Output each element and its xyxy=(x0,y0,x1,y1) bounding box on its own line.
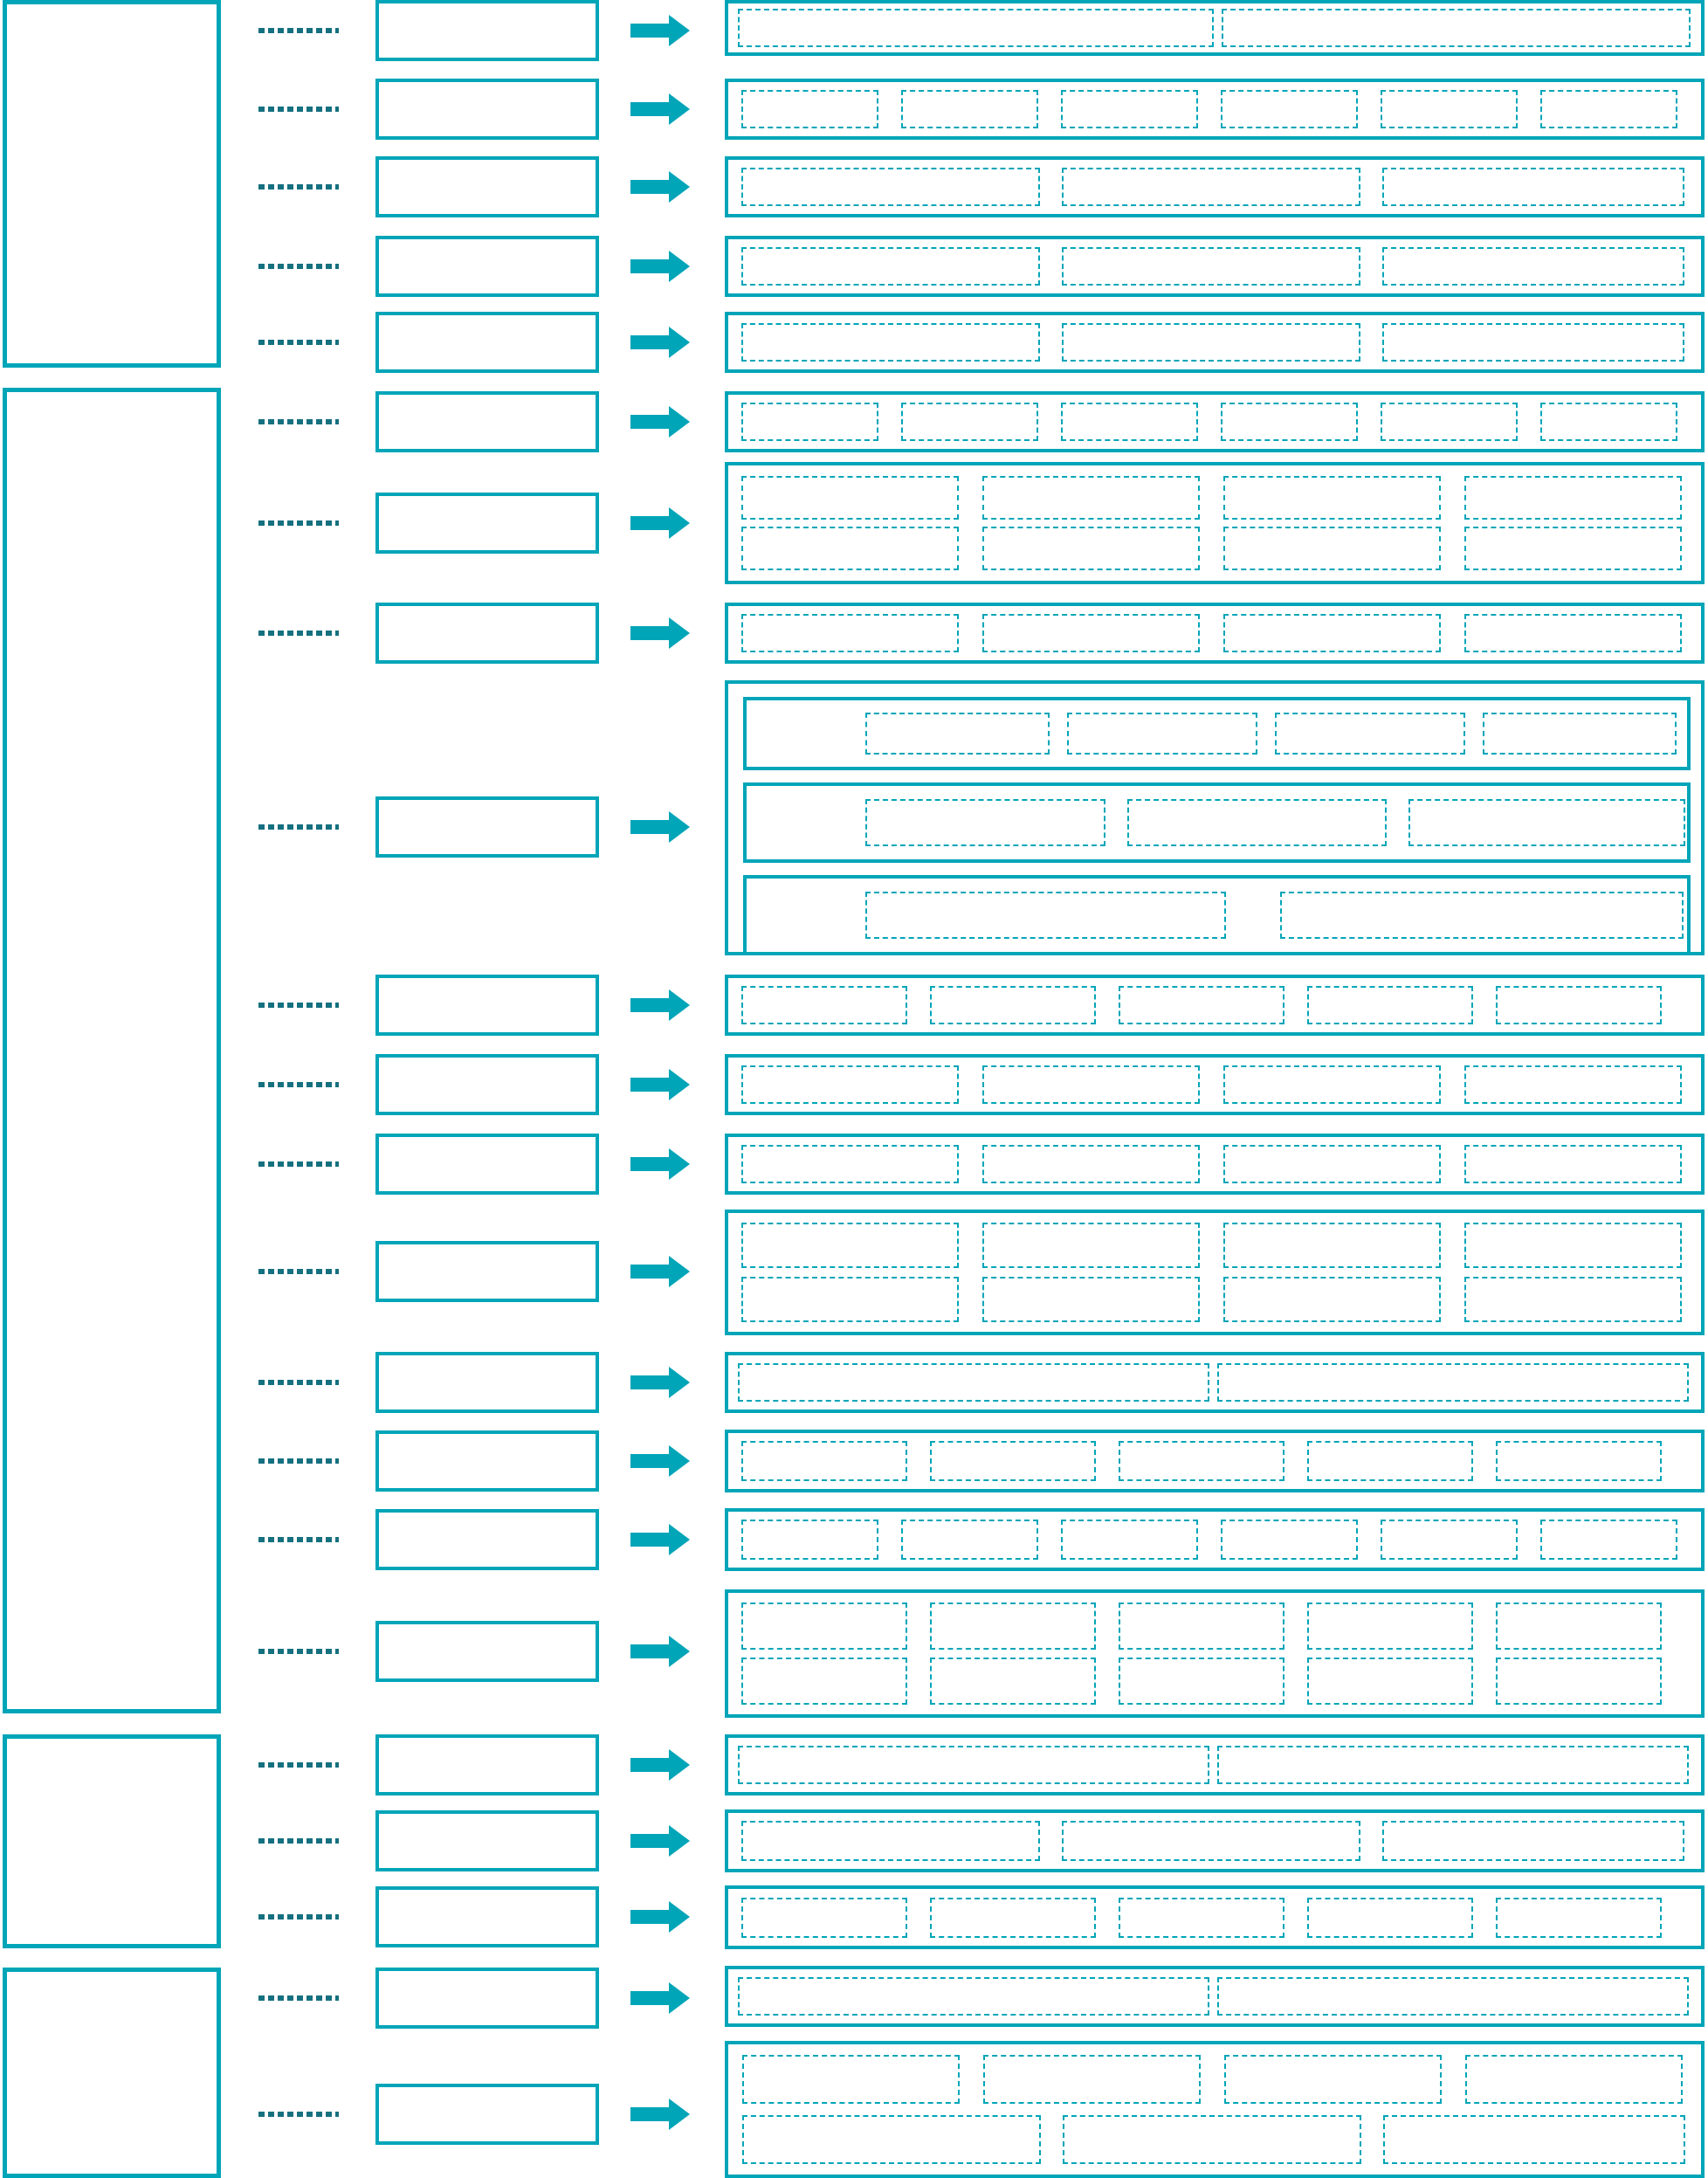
items-container xyxy=(725,462,1705,584)
item-placeholder-cell xyxy=(982,1277,1200,1322)
item-placeholder-cell xyxy=(1223,1065,1441,1104)
item-placeholder-cell xyxy=(1496,1898,1662,1938)
cells-row xyxy=(728,606,1701,660)
item-placeholder-cell xyxy=(1540,1520,1677,1560)
items-container xyxy=(725,1210,1705,1335)
item-placeholder-cell xyxy=(1062,323,1360,362)
arrow-shaft xyxy=(630,1078,672,1092)
item-placeholder-cell xyxy=(741,90,878,128)
item-placeholder-cell xyxy=(1275,713,1465,755)
arrow-right-icon xyxy=(630,1636,690,1667)
arrow-right-icon xyxy=(630,989,690,1021)
group-box-4 xyxy=(3,1968,221,2178)
cells-row xyxy=(728,3,1701,52)
cells-row xyxy=(728,1658,1701,1705)
cells-row xyxy=(728,395,1701,449)
items-container xyxy=(725,1054,1705,1115)
item-placeholder-cell xyxy=(1217,1977,1689,2016)
arrow-shaft xyxy=(630,1834,672,1848)
arrow-head xyxy=(669,327,690,358)
item-placeholder-cell xyxy=(1221,403,1358,441)
item-placeholder-cell xyxy=(901,403,1038,441)
item-placeholder-cell xyxy=(930,1441,1096,1481)
item-placeholder-cell xyxy=(1307,1658,1473,1705)
item-placeholder-cell xyxy=(982,527,1200,570)
cells-row xyxy=(728,2115,1701,2164)
arrow-head xyxy=(669,2099,690,2130)
item-placeholder-cell xyxy=(741,1658,907,1705)
arrow-shaft xyxy=(630,2107,672,2121)
items-container xyxy=(725,1734,1705,1795)
item-placeholder-cell xyxy=(1223,476,1441,520)
dashed-connector-line xyxy=(258,1269,339,1274)
items-container xyxy=(725,391,1705,452)
item-placeholder-cell xyxy=(1119,1441,1284,1481)
dashed-connector-line xyxy=(258,824,339,830)
items-container xyxy=(725,0,1705,56)
item-placeholder-cell xyxy=(1464,1145,1682,1183)
arrow-head xyxy=(669,1982,690,2014)
arrow-head xyxy=(669,1367,690,1398)
item-placeholder-cell xyxy=(738,1977,1209,2016)
arrow-head xyxy=(669,1445,690,1477)
cells-row xyxy=(728,1738,1701,1792)
diagram-canvas xyxy=(0,0,1708,2178)
item-placeholder-cell xyxy=(1061,403,1198,441)
dashed-connector-line xyxy=(258,631,339,636)
arrow-right-icon xyxy=(630,1982,690,2014)
item-placeholder-cell xyxy=(1383,2115,1685,2164)
item-placeholder-cell xyxy=(930,1602,1096,1650)
dashed-connector-line xyxy=(258,1914,339,1920)
item-placeholder-cell xyxy=(1119,1658,1284,1705)
dashed-connector-line xyxy=(258,1537,339,1542)
arrow-right-icon xyxy=(630,1148,690,1180)
item-placeholder-cell xyxy=(1464,614,1682,652)
arrow-shaft xyxy=(630,415,672,429)
item-placeholder-cell xyxy=(930,986,1096,1024)
arrow-shaft xyxy=(630,1758,672,1772)
arrow-right-icon xyxy=(630,15,690,46)
item-placeholder-cell xyxy=(930,1898,1096,1938)
cells-row xyxy=(728,82,1701,136)
items-container xyxy=(725,1885,1705,1949)
item-placeholder-cell xyxy=(741,1223,959,1268)
arrow-shaft xyxy=(630,1375,672,1389)
cells-row xyxy=(728,239,1701,293)
cells-row xyxy=(728,1137,1701,1191)
category-box xyxy=(375,312,599,373)
item-placeholder-cell xyxy=(1381,90,1518,128)
items-container xyxy=(725,1430,1705,1492)
item-placeholder-cell xyxy=(1062,247,1360,286)
item-placeholder-cell xyxy=(865,892,1226,939)
cells-row xyxy=(728,160,1701,214)
item-placeholder-cell xyxy=(1307,1602,1473,1650)
item-placeholder-cell xyxy=(741,1145,959,1183)
item-placeholder-cell xyxy=(982,1065,1200,1104)
arrow-shaft xyxy=(630,24,672,38)
arrow-right-icon xyxy=(630,1069,690,1100)
arrow-head xyxy=(669,1069,690,1100)
category-box xyxy=(375,2084,599,2145)
arrow-shaft xyxy=(630,259,672,273)
cells-row xyxy=(728,1277,1701,1322)
arrow-shaft xyxy=(630,335,672,349)
arrow-head xyxy=(669,406,690,438)
item-placeholder-cell xyxy=(1063,2115,1361,2164)
item-placeholder-cell xyxy=(1119,1898,1284,1938)
arrow-head xyxy=(669,1524,690,1555)
dashed-connector-line xyxy=(258,1838,339,1844)
sub-items-container xyxy=(743,697,1691,770)
item-placeholder-cell xyxy=(1223,527,1441,570)
sub-items-container xyxy=(743,875,1691,955)
arrow-right-icon xyxy=(630,2099,690,2130)
cells-row xyxy=(728,476,1701,520)
item-placeholder-cell xyxy=(1483,713,1677,755)
cells-row xyxy=(728,315,1701,369)
item-placeholder-cell xyxy=(1221,90,1358,128)
arrow-head xyxy=(669,1825,690,1857)
category-box xyxy=(375,1352,599,1413)
item-placeholder-cell xyxy=(1307,1898,1473,1938)
item-placeholder-cell xyxy=(1496,1602,1662,1650)
item-placeholder-cell xyxy=(1540,90,1677,128)
arrow-head xyxy=(669,1148,690,1180)
items-container xyxy=(725,236,1705,297)
arrow-right-icon xyxy=(630,93,690,125)
arrow-head xyxy=(669,1749,690,1781)
item-placeholder-cell xyxy=(1280,892,1684,939)
item-placeholder-cell xyxy=(741,527,959,570)
dashed-connector-line xyxy=(258,520,339,526)
arrow-shaft xyxy=(630,1644,672,1658)
arrow-head xyxy=(669,989,690,1021)
item-placeholder-cell xyxy=(1119,986,1284,1024)
arrow-head xyxy=(669,93,690,125)
dashed-connector-line xyxy=(258,1380,339,1385)
item-placeholder-cell xyxy=(742,2115,1041,2164)
category-box xyxy=(375,1509,599,1570)
category-box xyxy=(375,1430,599,1492)
arrow-shaft xyxy=(630,1991,672,2005)
dashed-connector-line xyxy=(258,419,339,424)
item-placeholder-cell xyxy=(741,1520,878,1560)
item-placeholder-cell xyxy=(1221,1520,1358,1560)
arrow-shaft xyxy=(630,1157,672,1171)
item-placeholder-cell xyxy=(741,168,1040,206)
arrow-right-icon xyxy=(630,251,690,282)
item-placeholder-cell xyxy=(1223,1145,1441,1183)
item-placeholder-cell xyxy=(1127,799,1387,846)
group-box-1 xyxy=(3,0,221,368)
item-placeholder-cell xyxy=(741,476,959,520)
dashed-connector-line xyxy=(258,2112,339,2117)
item-placeholder-cell xyxy=(1540,403,1677,441)
item-placeholder-cell xyxy=(741,1065,959,1104)
items-container xyxy=(725,1966,1705,2027)
arrow-shaft xyxy=(630,516,672,530)
cells-row xyxy=(728,1889,1701,1946)
item-placeholder-cell xyxy=(1408,799,1685,846)
cells-row xyxy=(728,1512,1701,1568)
arrow-shaft xyxy=(630,1265,672,1279)
dashed-connector-line xyxy=(258,1458,339,1464)
category-box xyxy=(375,493,599,554)
item-placeholder-cell xyxy=(1382,1821,1684,1861)
items-container xyxy=(725,680,1705,955)
cells-row xyxy=(728,1433,1701,1489)
item-placeholder-cell xyxy=(1496,1441,1662,1481)
arrow-shaft xyxy=(630,1454,672,1468)
category-box xyxy=(375,1886,599,1947)
arrow-right-icon xyxy=(630,1749,690,1781)
item-placeholder-cell xyxy=(741,1602,907,1650)
items-container xyxy=(725,2041,1705,2178)
category-box xyxy=(375,1054,599,1115)
arrow-shaft xyxy=(630,1533,672,1547)
arrow-right-icon xyxy=(630,1445,690,1477)
item-placeholder-cell xyxy=(741,1277,959,1322)
dashed-connector-line xyxy=(258,184,339,190)
dashed-connector-line xyxy=(258,1762,339,1768)
group-box-3 xyxy=(3,1734,221,1948)
category-box xyxy=(375,1134,599,1195)
items-container xyxy=(725,1134,1705,1195)
cells-row xyxy=(728,2055,1701,2104)
item-placeholder-cell xyxy=(741,403,878,441)
arrow-head xyxy=(669,811,690,843)
arrow-right-icon xyxy=(630,617,690,649)
item-placeholder-cell xyxy=(1061,1520,1198,1560)
cells-row xyxy=(728,1223,1701,1268)
item-placeholder-cell xyxy=(1067,713,1257,755)
item-placeholder-cell xyxy=(1496,1658,1662,1705)
dashed-connector-line xyxy=(258,1082,339,1087)
cells-row xyxy=(728,527,1701,570)
arrow-shaft xyxy=(630,1910,672,1924)
category-box xyxy=(375,1734,599,1795)
arrow-shaft xyxy=(630,626,672,640)
items-container xyxy=(725,1508,1705,1571)
item-placeholder-cell xyxy=(741,614,959,652)
item-placeholder-cell xyxy=(738,1363,1209,1402)
arrow-right-icon xyxy=(630,507,690,539)
arrow-head xyxy=(669,1636,690,1667)
item-placeholder-cell xyxy=(982,1223,1200,1268)
item-placeholder-cell xyxy=(1382,247,1684,286)
item-placeholder-cell xyxy=(1381,1520,1518,1560)
cells-grid xyxy=(728,465,1701,581)
arrow-shaft xyxy=(630,180,672,194)
arrow-head xyxy=(669,15,690,46)
item-placeholder-cell xyxy=(1307,986,1473,1024)
item-placeholder-cell xyxy=(1307,1441,1473,1481)
cells-row xyxy=(728,1969,1701,2023)
category-box xyxy=(375,1968,599,2029)
dashed-connector-line xyxy=(258,1649,339,1654)
item-placeholder-cell xyxy=(865,799,1105,846)
items-container xyxy=(725,975,1705,1036)
item-placeholder-cell xyxy=(742,2055,960,2104)
dashed-connector-line xyxy=(258,28,339,33)
category-box xyxy=(375,79,599,140)
arrow-right-icon xyxy=(630,171,690,203)
arrow-right-icon xyxy=(630,811,690,843)
arrow-head xyxy=(669,251,690,282)
cells-row xyxy=(728,1058,1701,1112)
item-placeholder-cell xyxy=(1217,1363,1689,1402)
arrow-right-icon xyxy=(630,406,690,438)
arrow-head xyxy=(669,1901,690,1933)
category-box xyxy=(375,391,599,452)
items-container xyxy=(725,156,1705,217)
item-placeholder-cell xyxy=(1464,1277,1682,1322)
items-container xyxy=(725,1809,1705,1872)
item-placeholder-cell xyxy=(1464,1065,1682,1104)
cells-row xyxy=(728,1813,1701,1869)
category-box xyxy=(375,1621,599,1682)
item-placeholder-cell xyxy=(901,1520,1038,1560)
category-box xyxy=(375,796,599,858)
items-container xyxy=(725,1589,1705,1718)
category-box xyxy=(375,603,599,664)
item-placeholder-cell xyxy=(1119,1602,1284,1650)
item-placeholder-cell xyxy=(741,247,1040,286)
category-box xyxy=(375,975,599,1036)
arrow-right-icon xyxy=(630,1256,690,1287)
dashed-connector-line xyxy=(258,1003,339,1008)
item-placeholder-cell xyxy=(1217,1746,1689,1784)
item-placeholder-cell xyxy=(738,9,1214,47)
item-placeholder-cell xyxy=(1465,2055,1683,2104)
arrow-right-icon xyxy=(630,1901,690,1933)
item-placeholder-cell xyxy=(1382,323,1684,362)
item-placeholder-cell xyxy=(982,614,1200,652)
category-box xyxy=(375,1810,599,1871)
item-placeholder-cell xyxy=(930,1658,1096,1705)
cells-grid xyxy=(728,1593,1701,1714)
item-placeholder-cell xyxy=(1062,168,1360,206)
dashed-connector-line xyxy=(258,264,339,269)
item-placeholder-cell xyxy=(1464,1223,1682,1268)
item-placeholder-cell xyxy=(983,2055,1201,2104)
item-placeholder-cell xyxy=(1223,1277,1441,1322)
item-placeholder-cell xyxy=(901,90,1038,128)
cells-row xyxy=(728,1602,1701,1650)
arrow-head xyxy=(669,1256,690,1287)
dashed-connector-line xyxy=(258,340,339,345)
sub-items-container xyxy=(743,782,1691,863)
arrow-right-icon xyxy=(630,1825,690,1857)
arrow-right-icon xyxy=(630,327,690,358)
item-placeholder-cell xyxy=(1223,1223,1441,1268)
item-placeholder-cell xyxy=(738,1746,1209,1784)
item-placeholder-cell xyxy=(741,1821,1040,1861)
item-placeholder-cell xyxy=(982,1145,1200,1183)
items-container xyxy=(725,1352,1705,1413)
cells-row xyxy=(728,978,1701,1032)
arrow-head xyxy=(669,171,690,203)
items-container xyxy=(725,312,1705,373)
items-container xyxy=(725,79,1705,140)
item-placeholder-cell xyxy=(1381,403,1518,441)
arrow-head xyxy=(669,507,690,539)
cells-grid xyxy=(728,1213,1701,1332)
item-placeholder-cell xyxy=(1062,1821,1360,1861)
category-box xyxy=(375,156,599,217)
item-placeholder-cell xyxy=(1061,90,1198,128)
dashed-connector-line xyxy=(258,1995,339,2001)
item-placeholder-cell xyxy=(741,1898,907,1938)
group-box-2 xyxy=(3,388,221,1713)
arrow-right-icon xyxy=(630,1524,690,1555)
item-placeholder-cell xyxy=(1464,527,1682,570)
item-placeholder-cell xyxy=(1464,476,1682,520)
item-placeholder-cell xyxy=(741,986,907,1024)
item-placeholder-cell xyxy=(982,476,1200,520)
arrow-shaft xyxy=(630,820,672,834)
arrow-head xyxy=(669,617,690,649)
arrow-right-icon xyxy=(630,1367,690,1398)
category-box xyxy=(375,0,599,61)
dashed-connector-line xyxy=(258,107,339,112)
item-placeholder-cell xyxy=(865,713,1050,755)
dashed-connector-line xyxy=(258,1161,339,1167)
item-placeholder-cell xyxy=(1222,9,1691,47)
items-container xyxy=(725,603,1705,664)
arrow-shaft xyxy=(630,998,672,1012)
item-placeholder-cell xyxy=(741,323,1040,362)
cells-row xyxy=(728,1355,1701,1409)
cells-grid xyxy=(728,2044,1701,2175)
item-placeholder-cell xyxy=(1496,986,1662,1024)
arrow-shaft xyxy=(630,102,672,116)
category-box xyxy=(375,1241,599,1302)
item-placeholder-cell xyxy=(1224,2055,1442,2104)
item-placeholder-cell xyxy=(1223,614,1441,652)
item-placeholder-cell xyxy=(1382,168,1684,206)
item-placeholder-cell xyxy=(741,1441,907,1481)
category-box xyxy=(375,236,599,297)
